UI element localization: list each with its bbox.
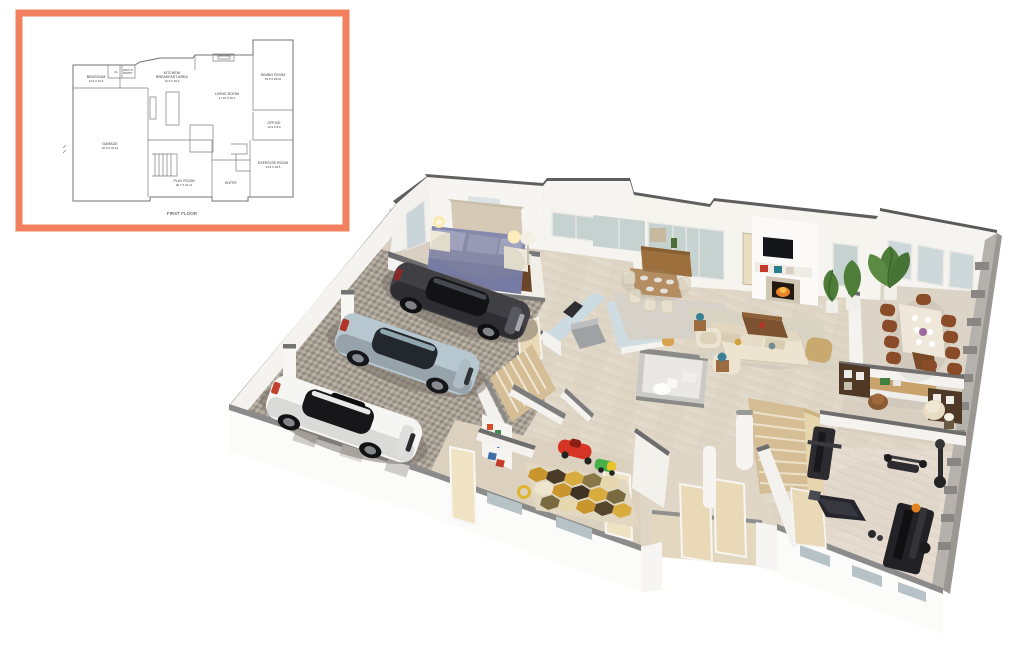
svg-text:20.7 X 31.11: 20.7 X 31.11 [176,183,193,187]
svg-text:PANTRY: PANTRY [123,72,133,75]
svg-text:ENTRY: ENTRY [225,181,238,185]
svg-text:16.3 X 26.2: 16.3 X 26.2 [165,79,180,83]
svg-text:14.9 X 10.2: 14.9 X 10.2 [89,79,104,83]
svg-text:CL: CL [114,70,118,74]
svg-text:15.5 X 25.01: 15.5 X 25.01 [265,77,282,81]
svg-text:14.9 X 20.5: 14.9 X 20.5 [266,165,281,169]
svg-text:26.9 X 31.10: 26.9 X 31.10 [102,146,119,150]
svg-text:13.9 X 8.9: 13.9 X 8.9 [267,125,281,129]
svg-text:FIRST FLOOR: FIRST FLOOR [167,211,198,216]
svg-text:17.10 X 29.2: 17.10 X 29.2 [219,96,236,100]
